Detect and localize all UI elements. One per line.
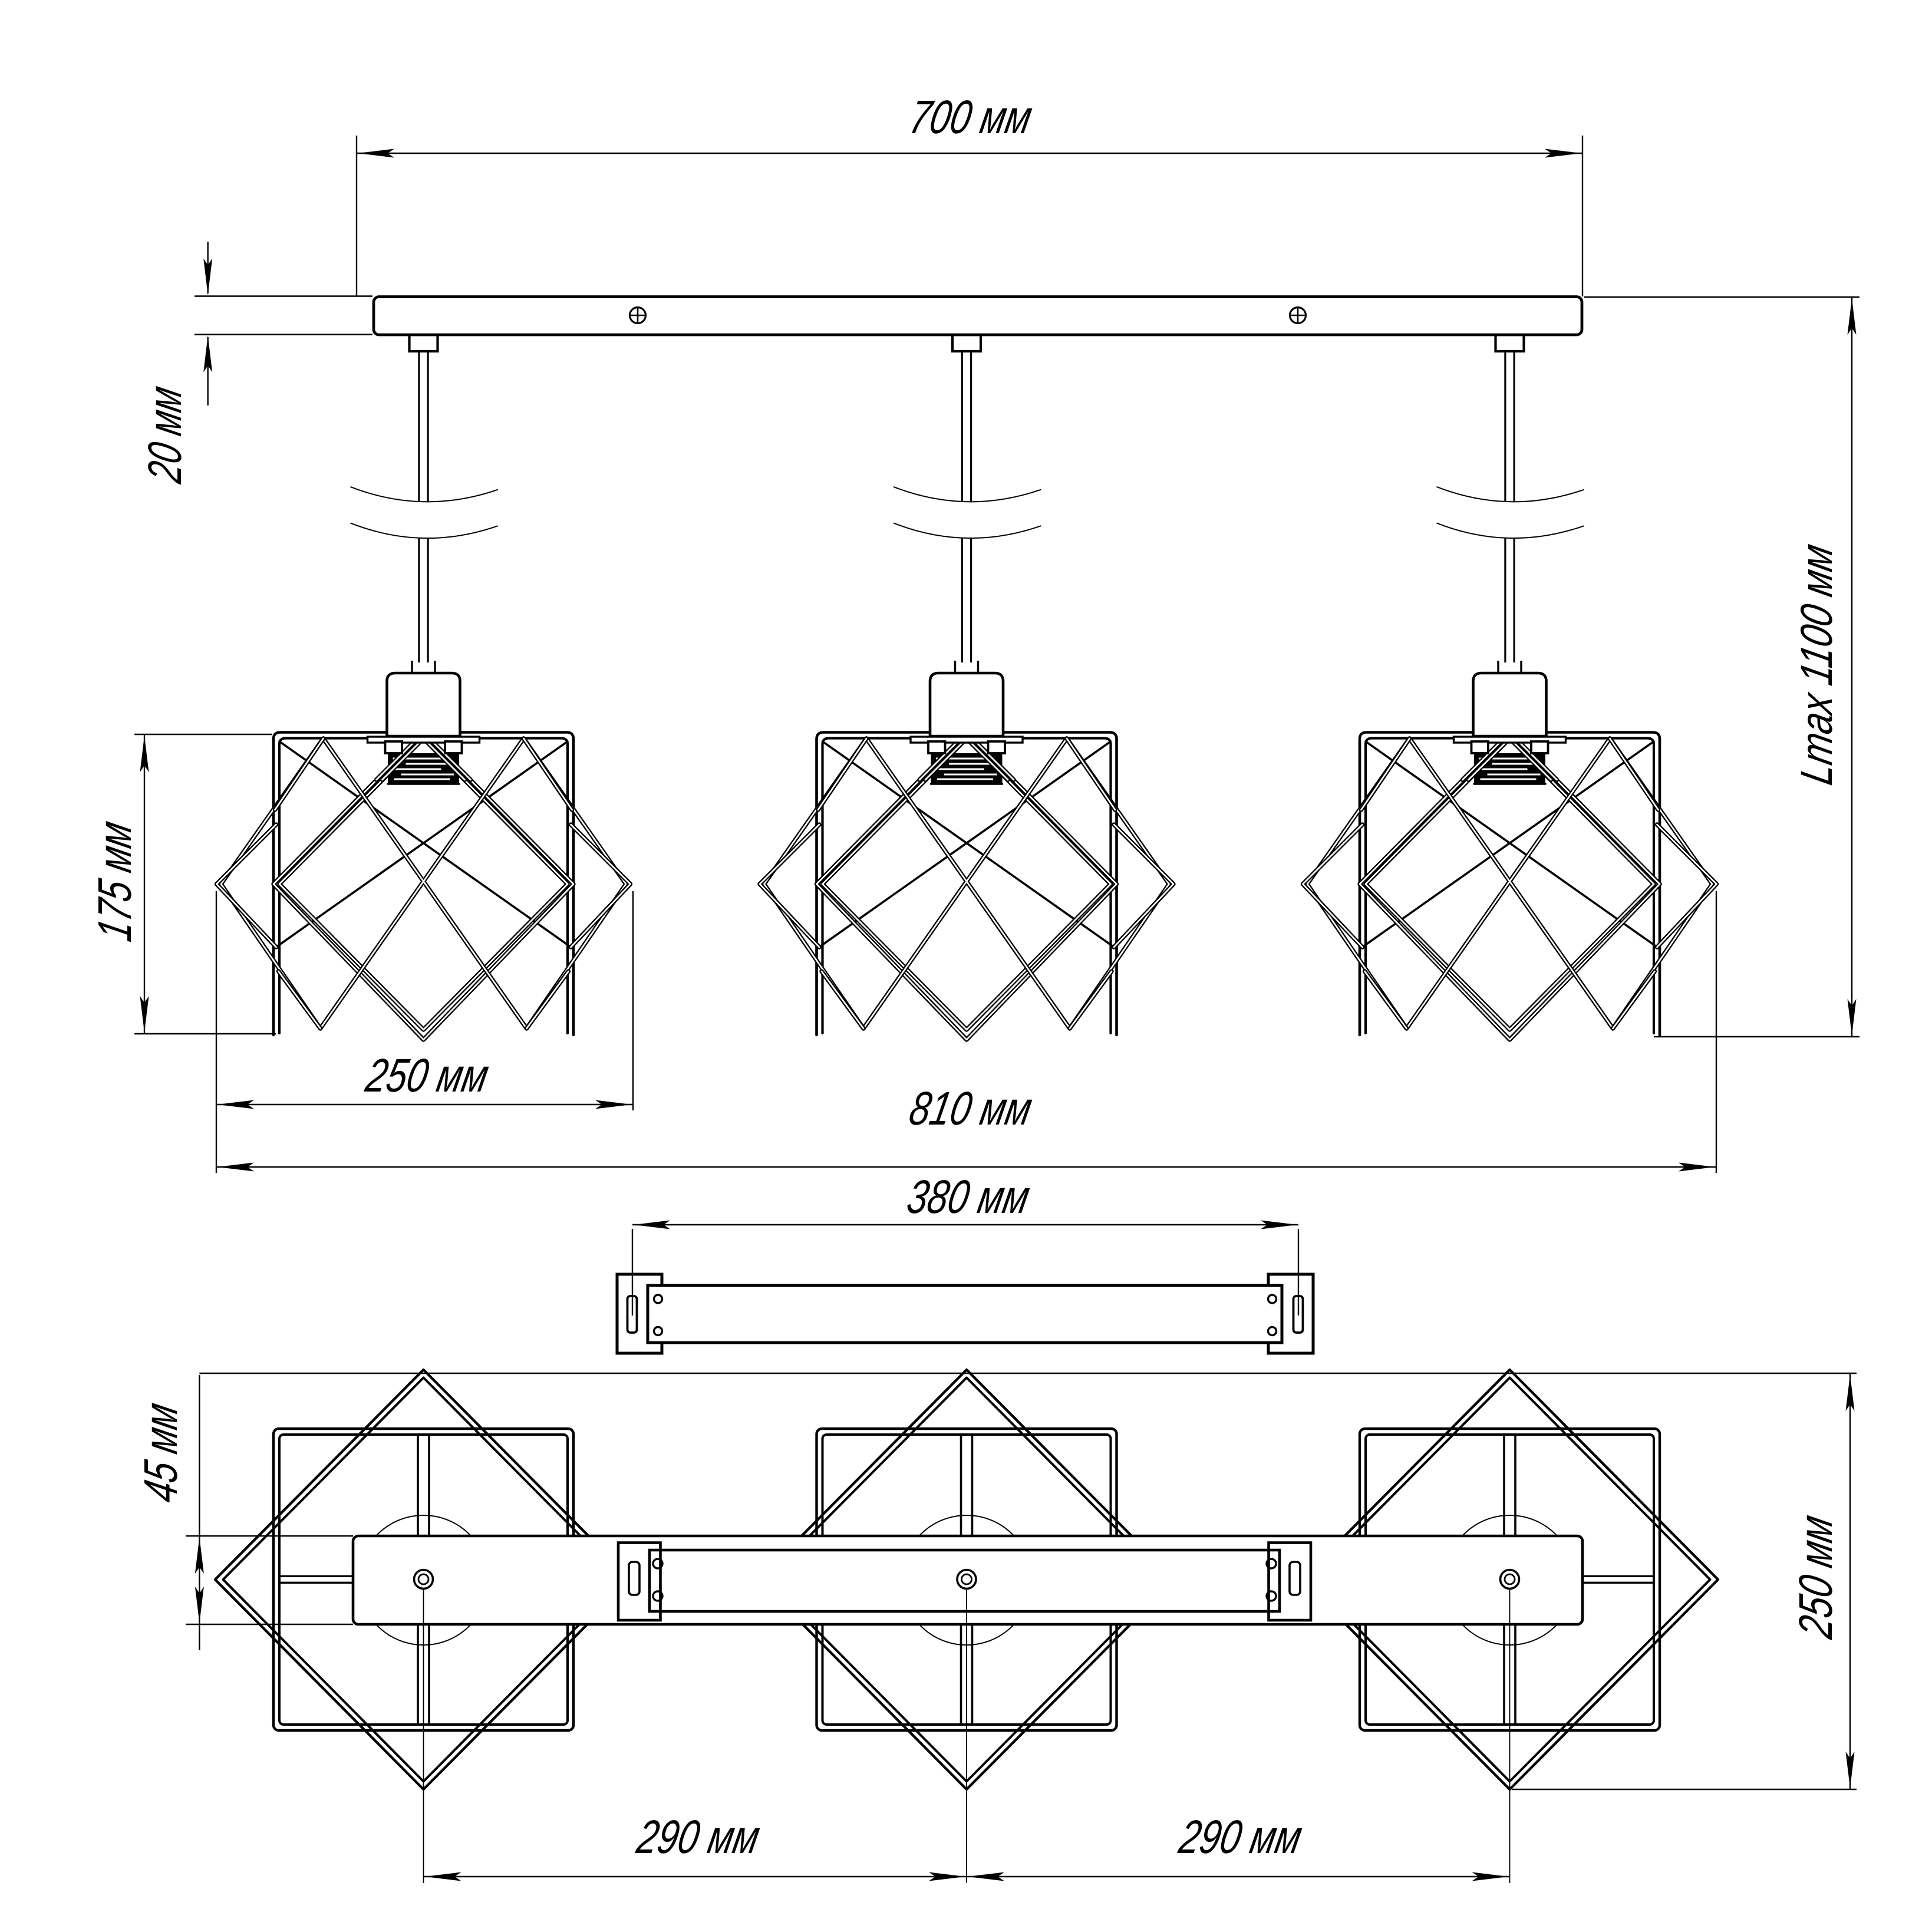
svg-text:Lmax 1100 мм: Lmax 1100 мм: [1792, 540, 1842, 788]
svg-text:700 мм: 700 мм: [905, 91, 1036, 144]
svg-text:290 мм: 290 мм: [632, 1811, 764, 1864]
svg-text:250 мм: 250 мм: [1790, 1511, 1842, 1643]
svg-text:45 мм: 45 мм: [135, 1399, 187, 1506]
svg-text:250 мм: 250 мм: [361, 1050, 493, 1102]
svg-text:810 мм: 810 мм: [905, 1083, 1036, 1135]
svg-text:380 мм: 380 мм: [903, 1171, 1034, 1224]
svg-text:290 мм: 290 мм: [1175, 1811, 1306, 1864]
svg-text:175 мм: 175 мм: [89, 817, 141, 945]
svg-text:20 мм: 20 мм: [139, 382, 192, 487]
